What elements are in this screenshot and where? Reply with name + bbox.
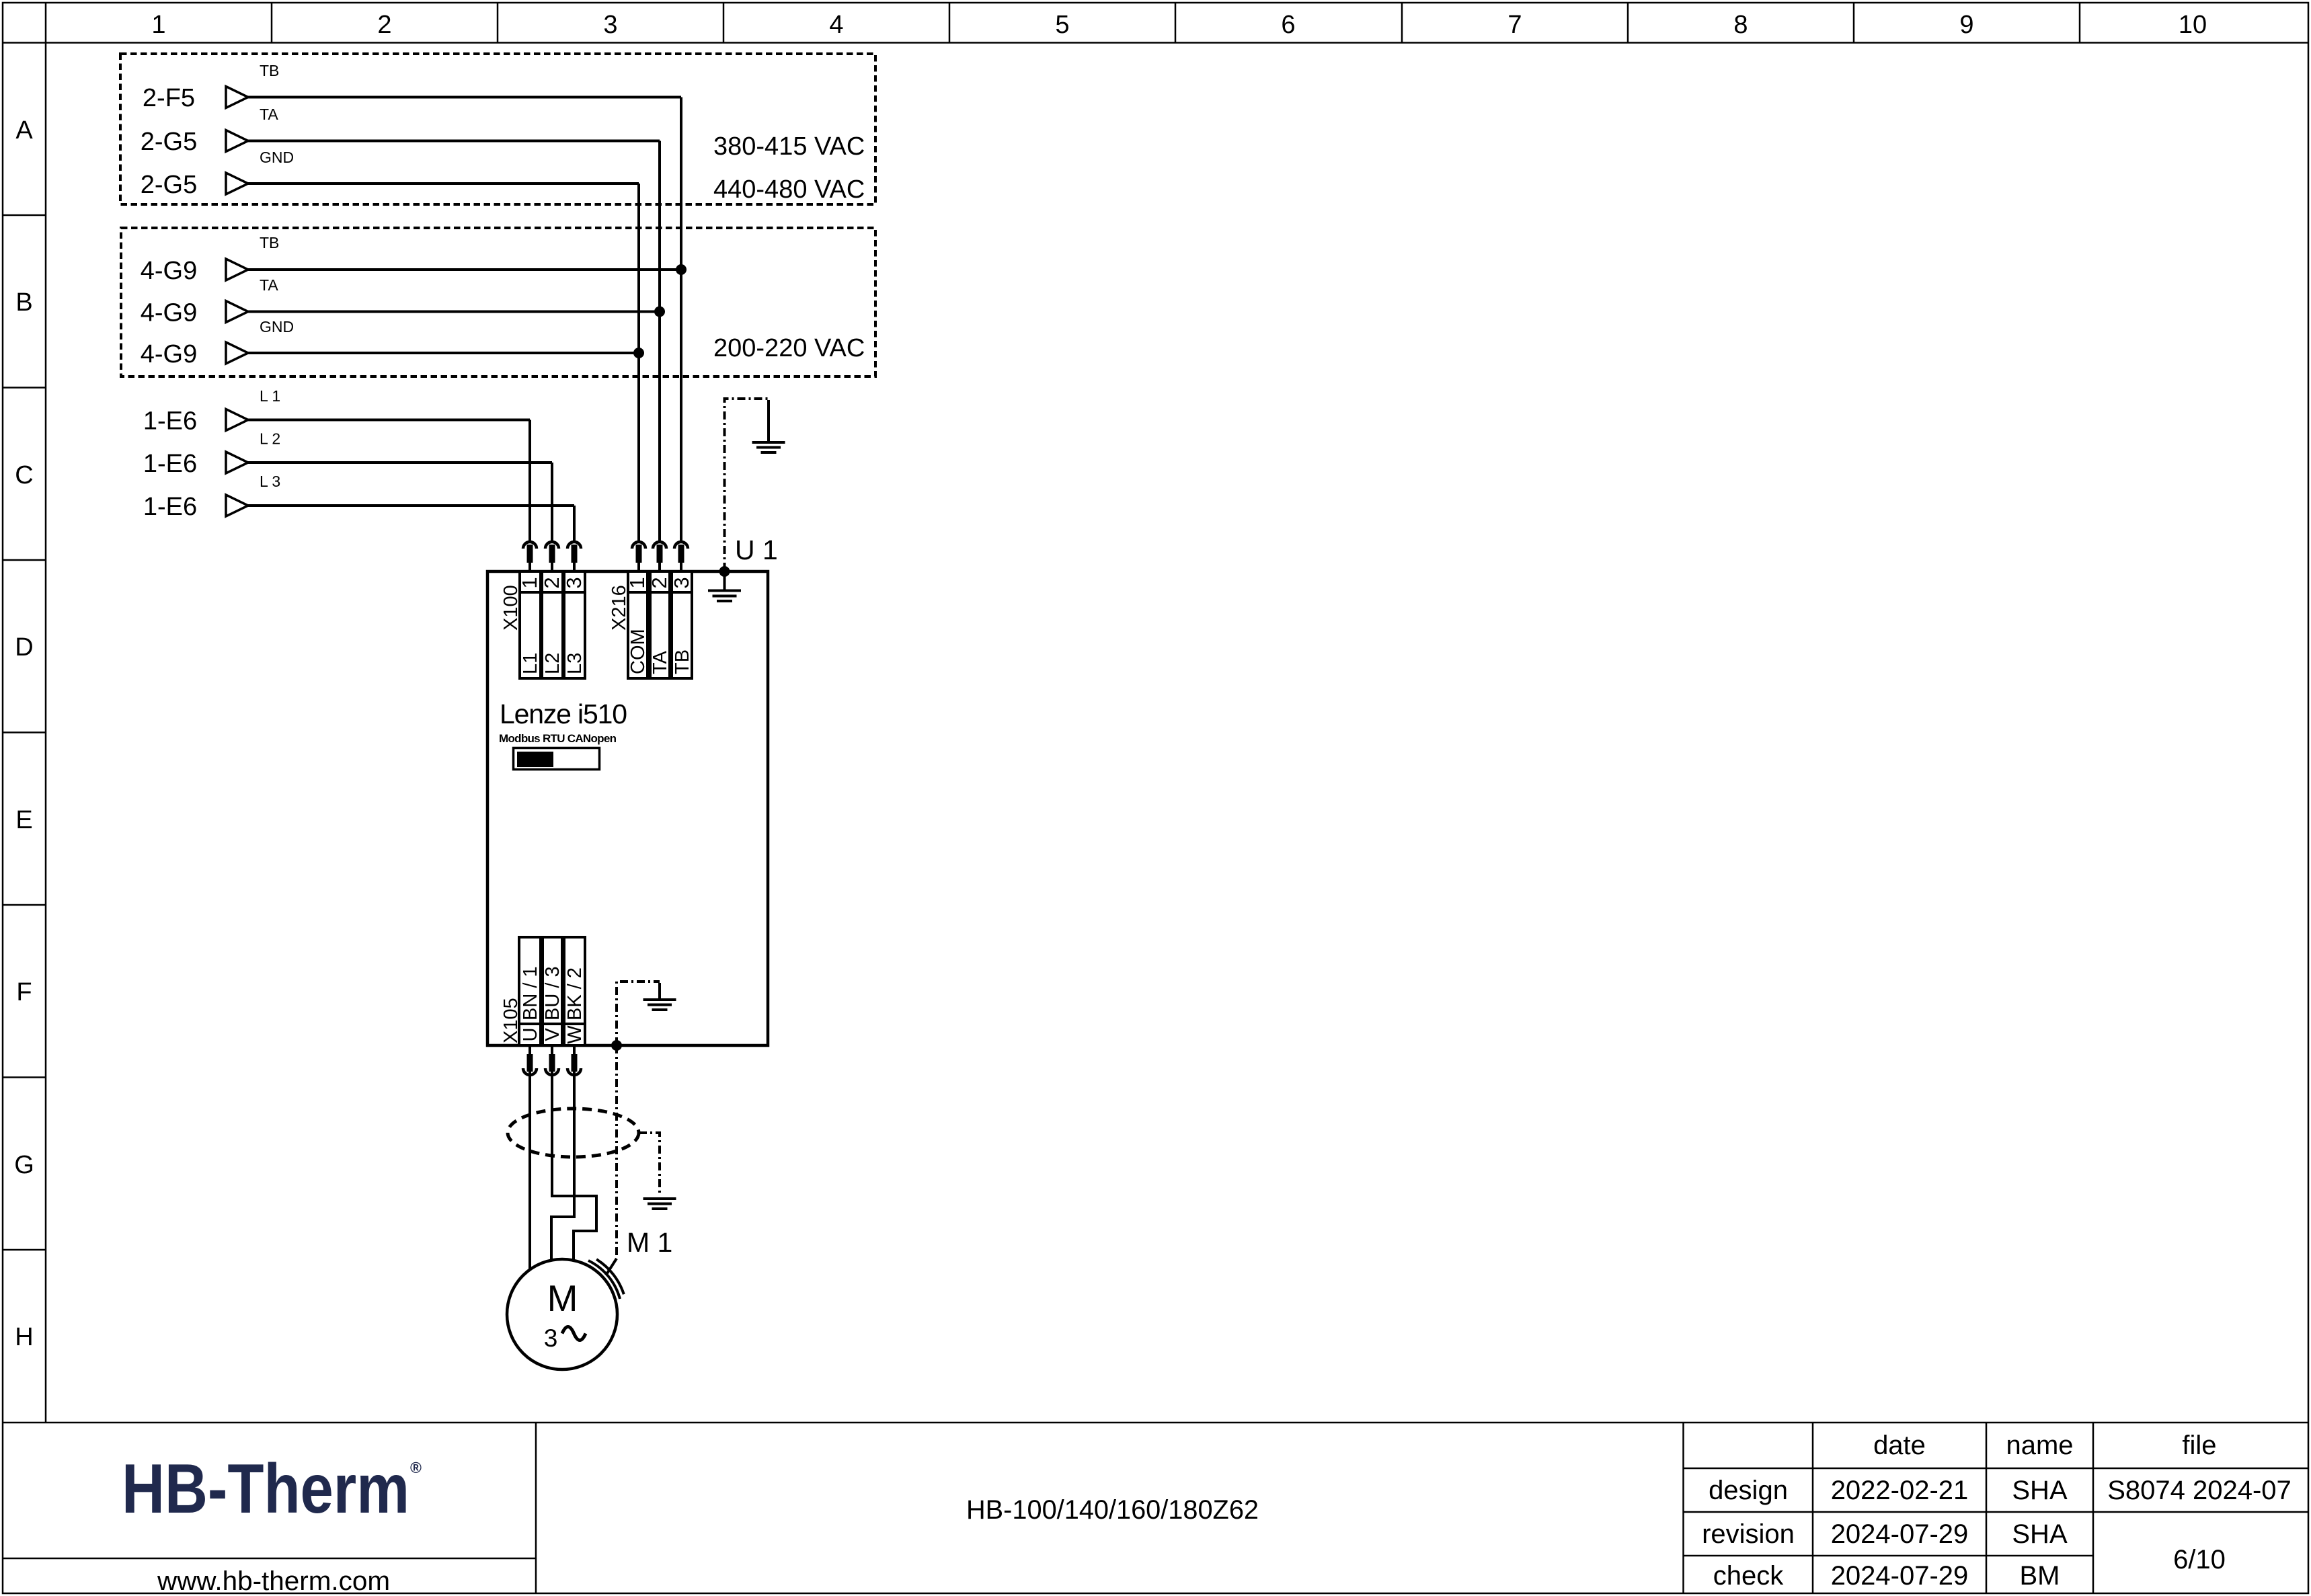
svg-text:2024-07-29: 2024-07-29 — [1831, 1519, 1969, 1549]
svg-text:F: F — [16, 978, 32, 1006]
svg-text:BM: BM — [2020, 1561, 2060, 1591]
svg-text:200-220 VAC: 200-220 VAC — [713, 334, 865, 362]
svg-text:8: 8 — [1733, 11, 1748, 39]
svg-text:2: 2 — [648, 577, 671, 588]
svg-text:COM: COM — [627, 629, 649, 674]
svg-text:G: G — [14, 1151, 34, 1179]
svg-text:BU / 3: BU / 3 — [542, 966, 563, 1021]
svg-text:L3: L3 — [564, 653, 586, 674]
svg-text:3: 3 — [603, 11, 617, 39]
svg-text:TA: TA — [260, 276, 278, 294]
svg-text:5: 5 — [1055, 11, 1069, 39]
svg-text:4-G9: 4-G9 — [141, 340, 197, 368]
svg-text:B: B — [15, 288, 32, 317]
svg-text:BK / 2: BK / 2 — [564, 967, 586, 1021]
svg-text:TA: TA — [650, 650, 671, 674]
svg-text:U 1: U 1 — [735, 534, 778, 565]
svg-text:HB-Therm: HB-Therm — [122, 1450, 409, 1528]
svg-text:2: 2 — [377, 11, 391, 39]
svg-text:L 3: L 3 — [260, 473, 280, 490]
svg-text:V: V — [542, 1028, 563, 1041]
svg-text:L1: L1 — [520, 653, 541, 674]
svg-text:4-G9: 4-G9 — [141, 299, 197, 327]
svg-text:X100: X100 — [500, 585, 522, 631]
svg-text:TB: TB — [672, 649, 693, 674]
svg-text:2022-02-21: 2022-02-21 — [1831, 1476, 1969, 1505]
svg-text:SHA: SHA — [2012, 1476, 2068, 1505]
svg-text:X105: X105 — [500, 998, 522, 1043]
svg-text:file: file — [2182, 1431, 2216, 1460]
svg-text:L2: L2 — [542, 653, 563, 674]
svg-text:4-G9: 4-G9 — [141, 257, 197, 285]
svg-text:4: 4 — [829, 11, 843, 39]
svg-text:1-E6: 1-E6 — [143, 450, 197, 478]
svg-text:380-415 VAC: 380-415 VAC — [713, 132, 865, 161]
svg-text:7: 7 — [1507, 11, 1522, 39]
svg-text:date: date — [1873, 1431, 1926, 1460]
svg-text:Modbus RTU CANopen: Modbus RTU CANopen — [499, 732, 617, 745]
svg-text:440-480 VAC: 440-480 VAC — [713, 175, 865, 204]
svg-text:U: U — [520, 1028, 541, 1042]
svg-text:6/10: 6/10 — [2173, 1545, 2226, 1574]
svg-text:1: 1 — [151, 11, 165, 39]
svg-text:SHA: SHA — [2012, 1519, 2068, 1549]
svg-text:3: 3 — [544, 1324, 558, 1352]
svg-text:revision: revision — [1702, 1519, 1795, 1549]
svg-text:X216: X216 — [609, 585, 630, 631]
svg-text:TA: TA — [260, 106, 278, 123]
svg-text:check: check — [1713, 1561, 1784, 1591]
svg-text:E: E — [15, 806, 32, 834]
svg-text:6: 6 — [1281, 11, 1295, 39]
svg-text:D: D — [15, 633, 33, 662]
svg-text:name: name — [2006, 1431, 2073, 1460]
svg-text:W: W — [564, 1025, 586, 1044]
svg-text:BN / 1: BN / 1 — [520, 966, 541, 1021]
svg-text:2024-07-29: 2024-07-29 — [1831, 1561, 1969, 1591]
svg-text:L 2: L 2 — [260, 430, 280, 448]
svg-text:2: 2 — [540, 577, 563, 588]
svg-text:®: ® — [410, 1459, 422, 1476]
svg-text:M 1: M 1 — [627, 1227, 672, 1258]
svg-text:HB-100/140/160/180Z62: HB-100/140/160/180Z62 — [966, 1495, 1259, 1525]
svg-text:9: 9 — [1959, 11, 1973, 39]
svg-text:design: design — [1709, 1476, 1788, 1505]
svg-text:1: 1 — [625, 577, 649, 588]
svg-text:1: 1 — [518, 577, 541, 588]
svg-text:10: 10 — [2179, 11, 2207, 39]
svg-text:C: C — [15, 461, 33, 489]
svg-text:1-E6: 1-E6 — [143, 407, 197, 436]
svg-text:S8074 2024-07: S8074 2024-07 — [2107, 1476, 2292, 1505]
svg-text:L 1: L 1 — [260, 387, 280, 405]
svg-text:M: M — [547, 1277, 578, 1319]
svg-text:3: 3 — [670, 577, 693, 588]
svg-text:1-E6: 1-E6 — [143, 493, 197, 521]
svg-text:H: H — [15, 1323, 33, 1351]
svg-text:www.hb-therm.com: www.hb-therm.com — [157, 1566, 390, 1596]
svg-text:2-G5: 2-G5 — [141, 171, 197, 199]
svg-text:2-G5: 2-G5 — [141, 128, 197, 156]
svg-text:Lenze i510: Lenze i510 — [500, 699, 627, 729]
svg-text:TB: TB — [260, 234, 279, 251]
svg-text:GND: GND — [260, 318, 294, 335]
svg-text:3: 3 — [562, 577, 586, 588]
svg-text:2-F5: 2-F5 — [143, 84, 195, 112]
svg-text:GND: GND — [260, 149, 294, 166]
svg-text:A: A — [15, 116, 33, 145]
svg-text:TB: TB — [260, 62, 279, 79]
